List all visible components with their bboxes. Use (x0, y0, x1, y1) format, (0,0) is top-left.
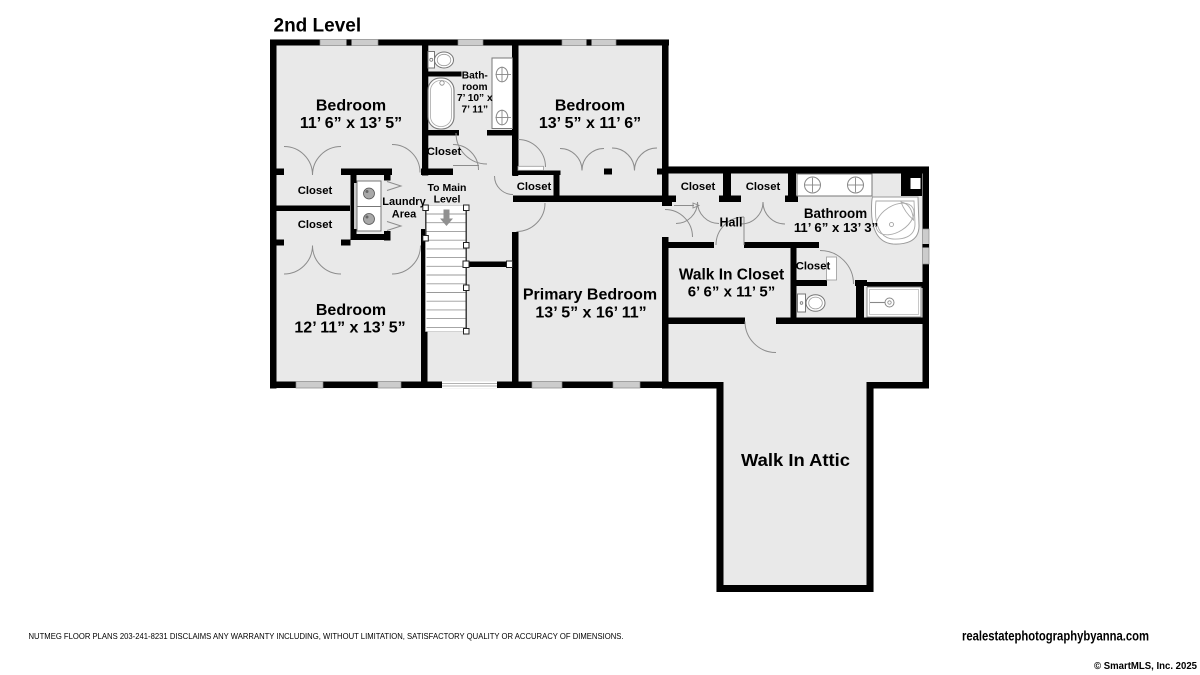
svg-text:Hall: Hall (720, 216, 743, 230)
svg-text:11’ 6” x 13’ 3”: 11’ 6” x 13’ 3” (794, 220, 878, 235)
svg-text:Walk In Attic: Walk In Attic (741, 450, 850, 470)
svg-text:Area: Area (392, 209, 417, 221)
svg-text:Primary Bedroom: Primary Bedroom (523, 287, 657, 304)
svg-text:13’ 5” x 11’ 6”: 13’ 5” x 11’ 6” (539, 115, 641, 132)
svg-text:Bathroom: Bathroom (804, 206, 867, 221)
svg-text:Closet: Closet (746, 181, 781, 193)
svg-text:12’ 11” x 13’ 5”: 12’ 11” x 13’ 5” (294, 320, 405, 337)
svg-text:Closet: Closet (796, 260, 831, 272)
svg-text:Bedroom: Bedroom (316, 98, 386, 115)
svg-text:Level: Level (434, 194, 461, 206)
svg-text:7’ 11”: 7’ 11” (461, 104, 488, 115)
svg-text:NUTMEG FLOOR PLANS 203-241-823: NUTMEG FLOOR PLANS 203-241-8231 DISCLAIM… (29, 632, 624, 641)
svg-text:realestatephotographybyanna.co: realestatephotographybyanna.com (962, 629, 1149, 644)
svg-text:Bedroom: Bedroom (316, 302, 386, 319)
svg-text:7’ 10” x: 7’ 10” x (457, 93, 493, 104)
svg-text:Bedroom: Bedroom (555, 98, 625, 115)
svg-text:11’ 6” x 13’ 5”: 11’ 6” x 13’ 5” (300, 115, 402, 132)
svg-text:To Main: To Main (428, 182, 467, 194)
svg-text:Closet: Closet (298, 185, 333, 197)
svg-text:Closet: Closet (517, 181, 552, 193)
svg-text:© SmartMLS, Inc. 2025: © SmartMLS, Inc. 2025 (1094, 661, 1198, 672)
svg-text:Laundry: Laundry (382, 196, 426, 208)
svg-text:Walk In Closet: Walk In Closet (679, 266, 784, 283)
svg-text:Closet: Closet (298, 219, 333, 231)
svg-text:13’ 5” x 16’ 11”: 13’ 5” x 16’ 11” (535, 305, 646, 322)
svg-text:room: room (462, 82, 487, 93)
svg-text:Bath-: Bath- (462, 71, 488, 82)
svg-text:6’ 6” x 11’ 5”: 6’ 6” x 11’ 5” (688, 283, 776, 300)
svg-text:2nd Level: 2nd Level (274, 16, 362, 37)
svg-text:Closet: Closet (681, 181, 716, 193)
svg-text:Closet: Closet (427, 146, 462, 158)
